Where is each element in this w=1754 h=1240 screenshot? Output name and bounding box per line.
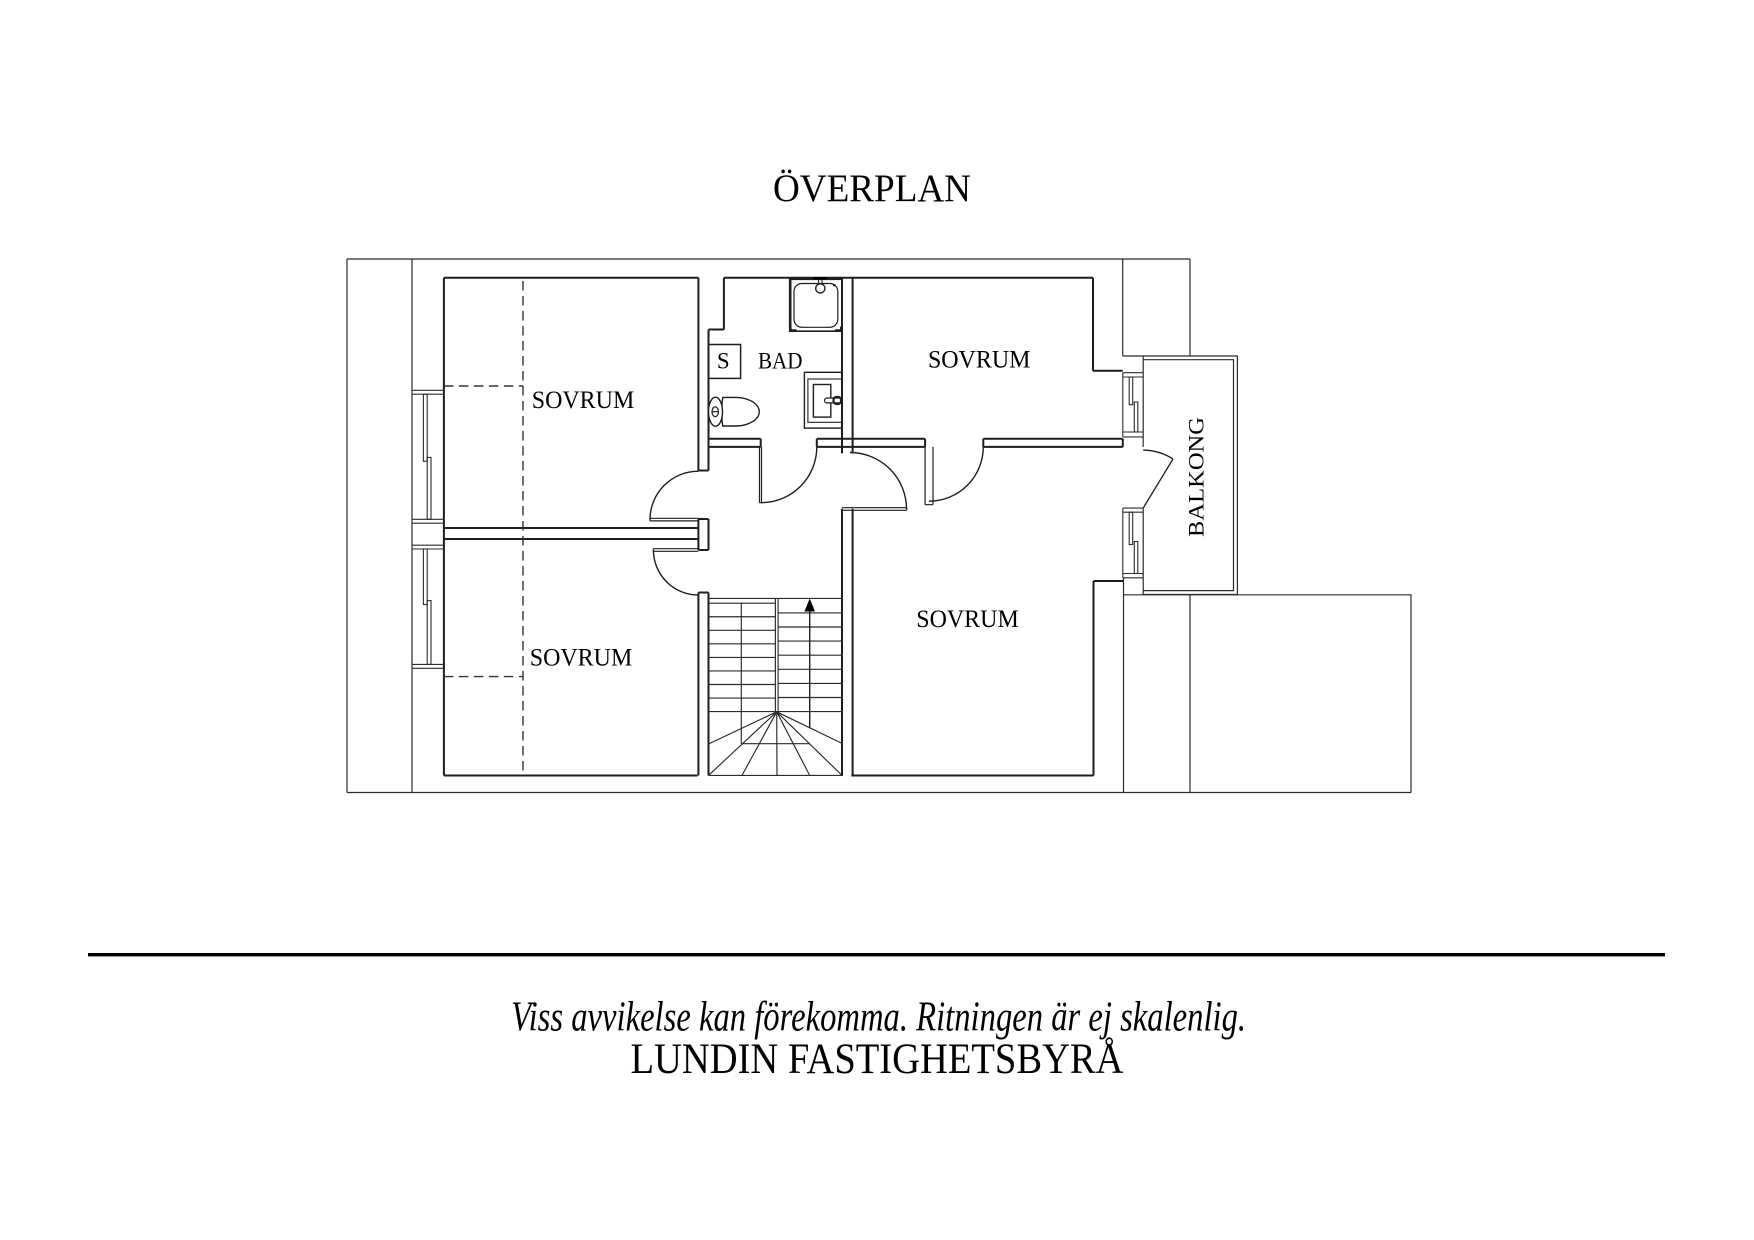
svg-text:Viss avvikelse kan förekomma.: Viss avvikelse kan förekomma. Ritningen … bbox=[511, 994, 1246, 1040]
svg-text:BALKONG: BALKONG bbox=[1184, 417, 1209, 537]
svg-text:SOVRUM: SOVRUM bbox=[532, 387, 635, 414]
svg-text:SOVRUM: SOVRUM bbox=[928, 347, 1031, 374]
svg-text:BAD: BAD bbox=[758, 348, 803, 373]
svg-text:LUNDIN FASTIGHETSBYRÅ: LUNDIN FASTIGHETSBYRÅ bbox=[631, 1036, 1124, 1083]
svg-text:SOVRUM: SOVRUM bbox=[530, 645, 633, 672]
svg-text:SOVRUM: SOVRUM bbox=[916, 606, 1019, 633]
svg-text:ÖVERPLAN: ÖVERPLAN bbox=[773, 167, 971, 210]
svg-text:S: S bbox=[717, 348, 730, 373]
